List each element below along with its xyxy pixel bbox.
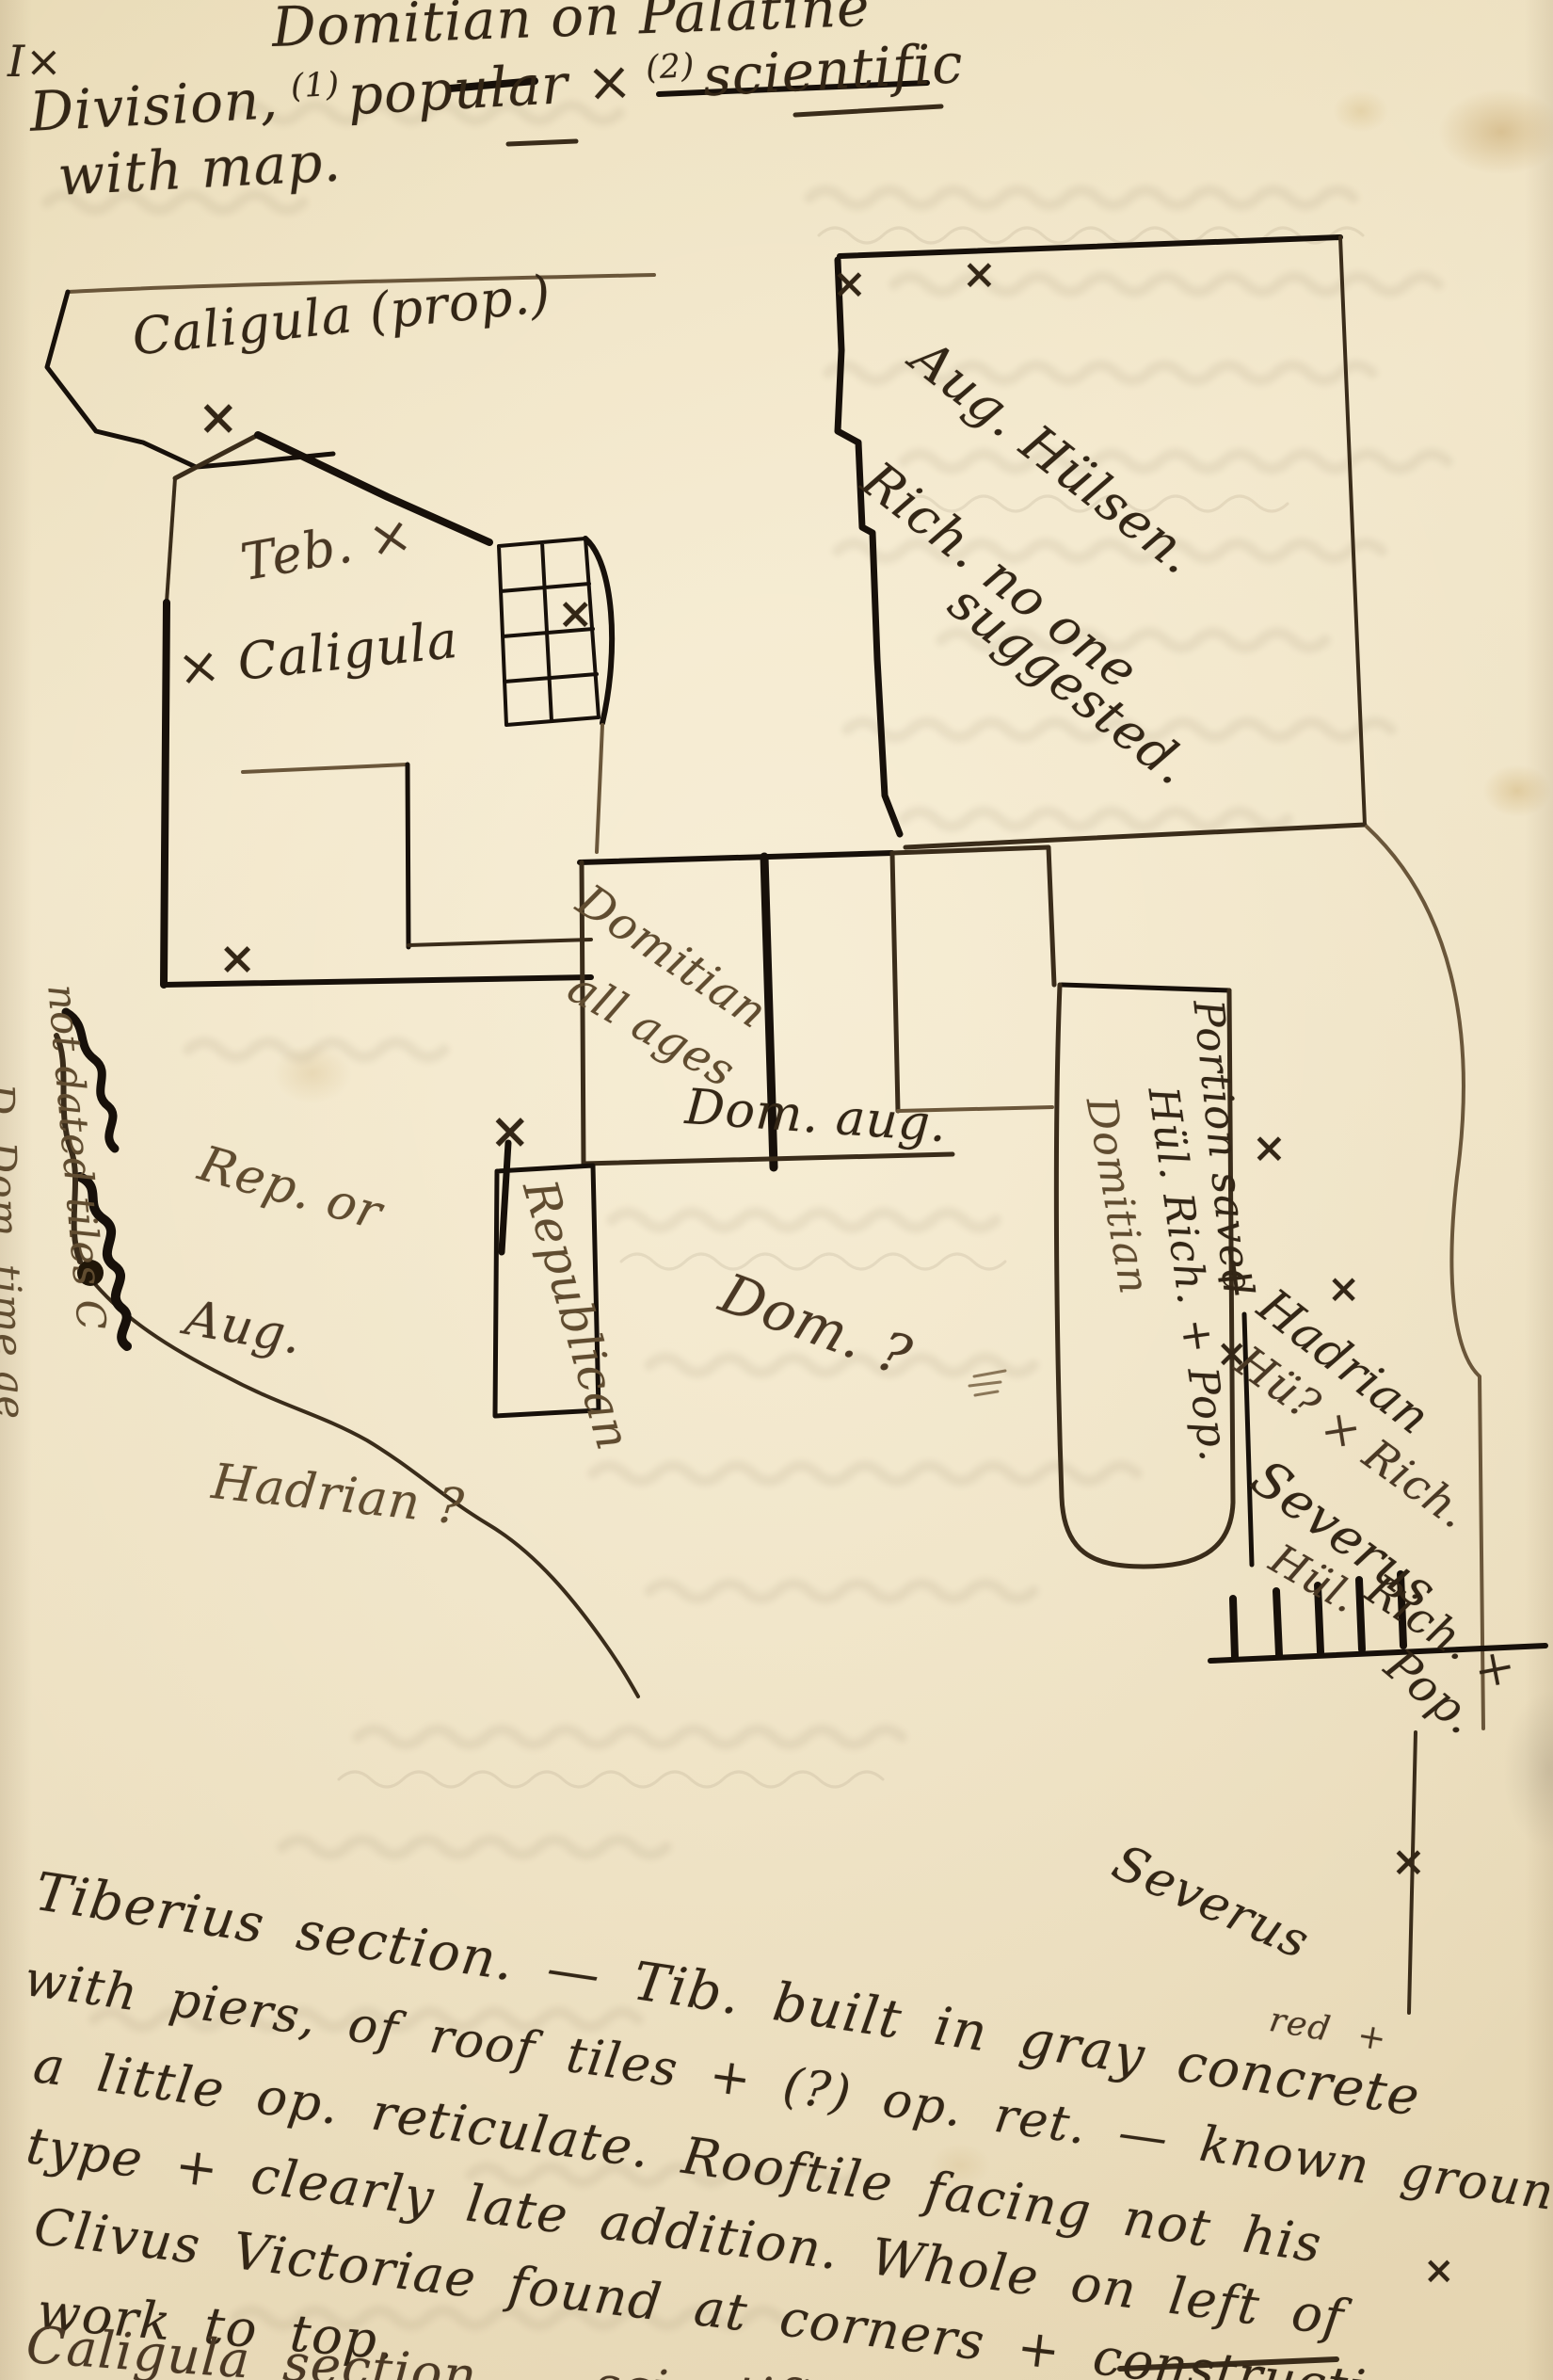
x-mark: ×	[1216, 1335, 1249, 1373]
title-superscript-2: (2)	[645, 47, 696, 88]
title-line3: with map.	[56, 134, 343, 203]
x-mark: ×	[489, 1107, 532, 1156]
x-mark: ×	[1327, 1269, 1361, 1309]
x-mark: ×	[557, 591, 595, 635]
x-mark: ×	[198, 394, 240, 442]
title-line2-pre: Division,	[28, 67, 280, 144]
x-mark: ×	[962, 254, 998, 296]
corner-mark: I×	[8, 40, 63, 83]
x-mark: ×	[1423, 2252, 1456, 2290]
title-line2-post: scientific	[701, 31, 965, 108]
notebook-page: I× Domitian on Palatine Division,(1)popu…	[0, 0, 1553, 2380]
x-mark: ×	[1391, 1841, 1427, 1883]
x-mark: ×	[1252, 1128, 1288, 1169]
title-superscript-1: (1)	[290, 66, 341, 106]
x-mark: ×	[218, 936, 257, 981]
x-mark: ×	[832, 264, 868, 305]
